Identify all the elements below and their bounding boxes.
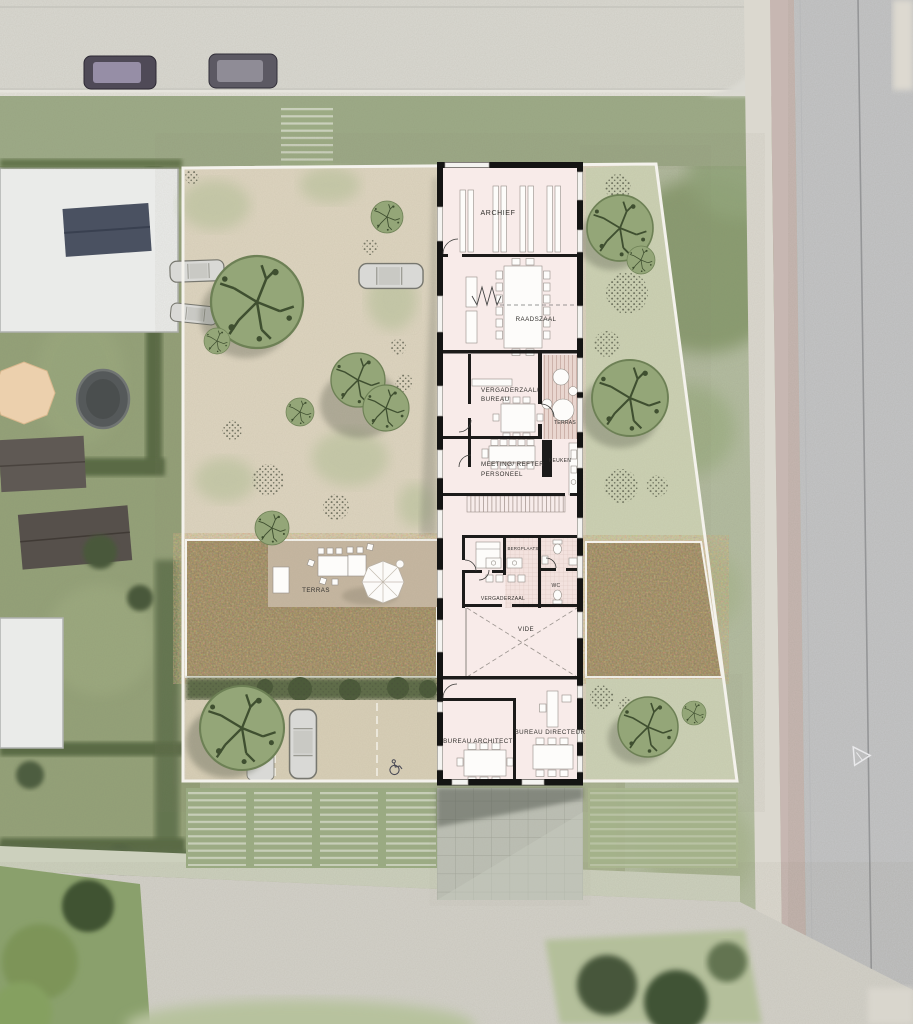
keuken-counter — [569, 443, 578, 495]
shrub-dotted — [646, 475, 668, 497]
tree — [682, 701, 706, 725]
tree — [618, 697, 678, 757]
label-terras-building: TERRAS — [554, 420, 576, 426]
shrub-dotted — [362, 239, 378, 255]
tree — [200, 686, 284, 770]
site-plan-image: TERRAS — [0, 0, 913, 1024]
neighbour-roof — [0, 436, 86, 492]
shrub-dotted — [590, 685, 614, 709]
shrub-dotted — [252, 464, 284, 496]
neighbour-tree — [127, 585, 153, 611]
window — [445, 163, 489, 168]
label-bureau-directeur: BUREAU DIRECTEUR — [515, 729, 586, 736]
tree — [363, 385, 409, 431]
label-vide: VIDE — [518, 626, 534, 633]
shrub-dotted — [185, 170, 199, 184]
label-vergaderzaal-bureau-1: VERGADERZAAL/ — [481, 387, 539, 394]
terrace-garden: TERRAS — [268, 541, 437, 607]
tree — [255, 511, 289, 545]
parked-car — [84, 56, 156, 89]
tree — [204, 328, 230, 354]
meadow-right — [586, 542, 722, 677]
window — [452, 780, 468, 785]
neighbour-tree — [83, 535, 117, 569]
site-plan: TERRAS — [170, 162, 738, 900]
label-archief: ARCHIEF — [481, 210, 516, 217]
parasol-icon — [362, 560, 404, 603]
shrub-dotted — [390, 339, 406, 355]
tree — [627, 246, 655, 274]
label-vergaderzaal-bureau-2: BUREAU — [481, 396, 510, 403]
label-bergplaats: BERGPLAATS — [508, 546, 539, 551]
label-vergaderzaal: VERGADERZAAL — [481, 596, 525, 602]
dark-tree — [62, 880, 114, 932]
label-wc: WC — [552, 583, 561, 589]
neighbour-tree — [16, 761, 44, 789]
label-meeting-refter-2: PERSONEEL — [481, 471, 523, 478]
driveway-crossing — [281, 107, 333, 167]
parked-car — [209, 54, 277, 88]
hedge — [155, 560, 179, 870]
label-terras-garden: TERRAS — [302, 587, 330, 594]
tree — [371, 201, 403, 233]
label-raadszaal: RAADSZAAL — [516, 316, 557, 323]
window — [522, 780, 544, 785]
garden-trampoline — [0, 362, 55, 424]
terrace-side-table — [273, 567, 289, 593]
tree — [592, 360, 668, 436]
building: ARCHIEF RAADSZAAL VERGADERZAAL/ BUREAU T… — [437, 162, 585, 786]
dark-tree — [577, 955, 637, 1015]
plaza — [437, 788, 583, 900]
label-meeting-refter-1: MEETING/ REFTER — [481, 461, 544, 468]
neighbour-building — [0, 618, 63, 748]
room-terras-deck — [543, 355, 580, 439]
label-bureau-architect: BUREAU ARCHITECT — [443, 738, 513, 745]
shrub-dotted — [606, 272, 648, 314]
label-keuken: KEUKEN — [549, 458, 571, 464]
neighbour-roof — [18, 505, 132, 569]
shrub-dotted — [604, 469, 638, 503]
site-plan-svg: TERRAS — [0, 0, 913, 1024]
shrub-dotted — [323, 494, 349, 520]
tree — [286, 398, 314, 426]
shrub-dotted — [594, 331, 620, 357]
left-neighbour-gardens — [0, 95, 200, 925]
staircase — [467, 496, 565, 512]
shrub-dotted — [222, 420, 242, 440]
parking-area — [186, 686, 437, 781]
car — [290, 709, 317, 778]
top-verge — [0, 96, 762, 168]
garden-shed — [62, 203, 151, 257]
car — [359, 264, 423, 289]
